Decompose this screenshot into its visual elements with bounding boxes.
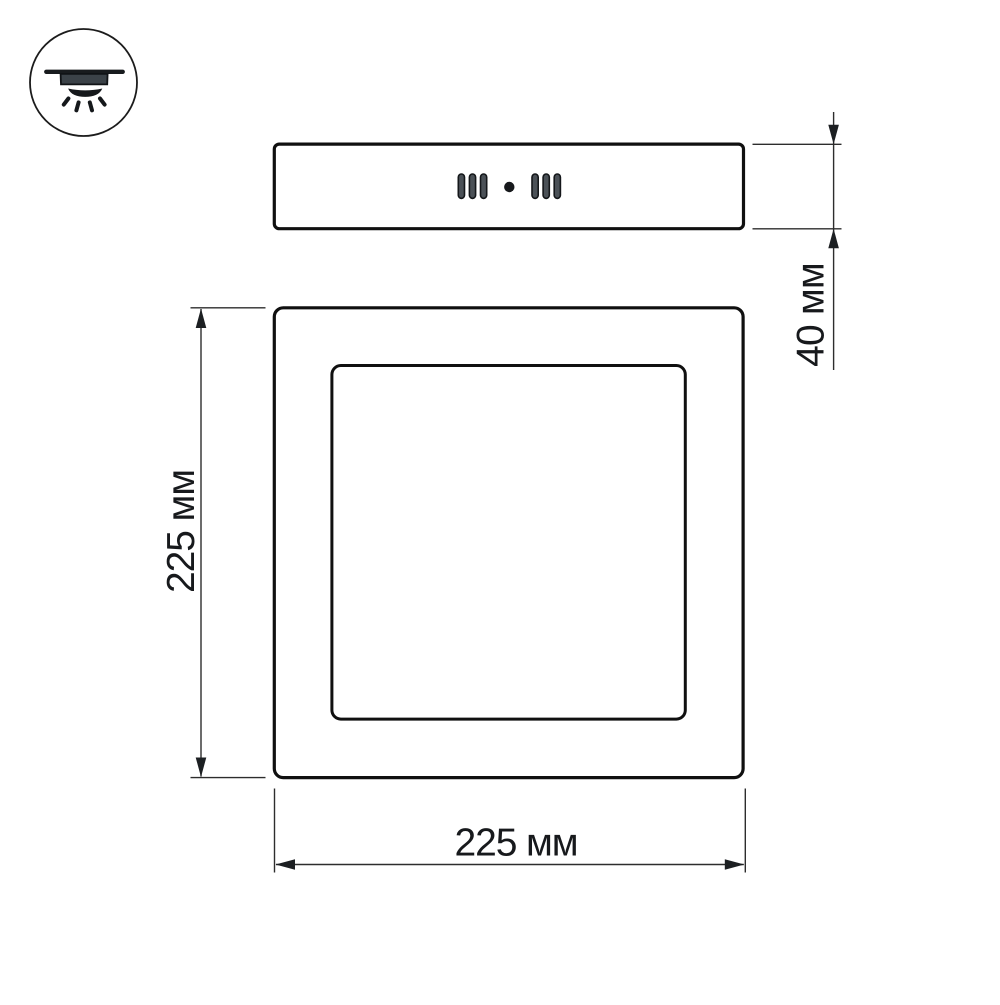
svg-text:225 мм: 225 мм	[160, 470, 203, 593]
svg-text:40 мм: 40 мм	[790, 263, 833, 367]
svg-text:225 мм: 225 мм	[455, 822, 578, 865]
